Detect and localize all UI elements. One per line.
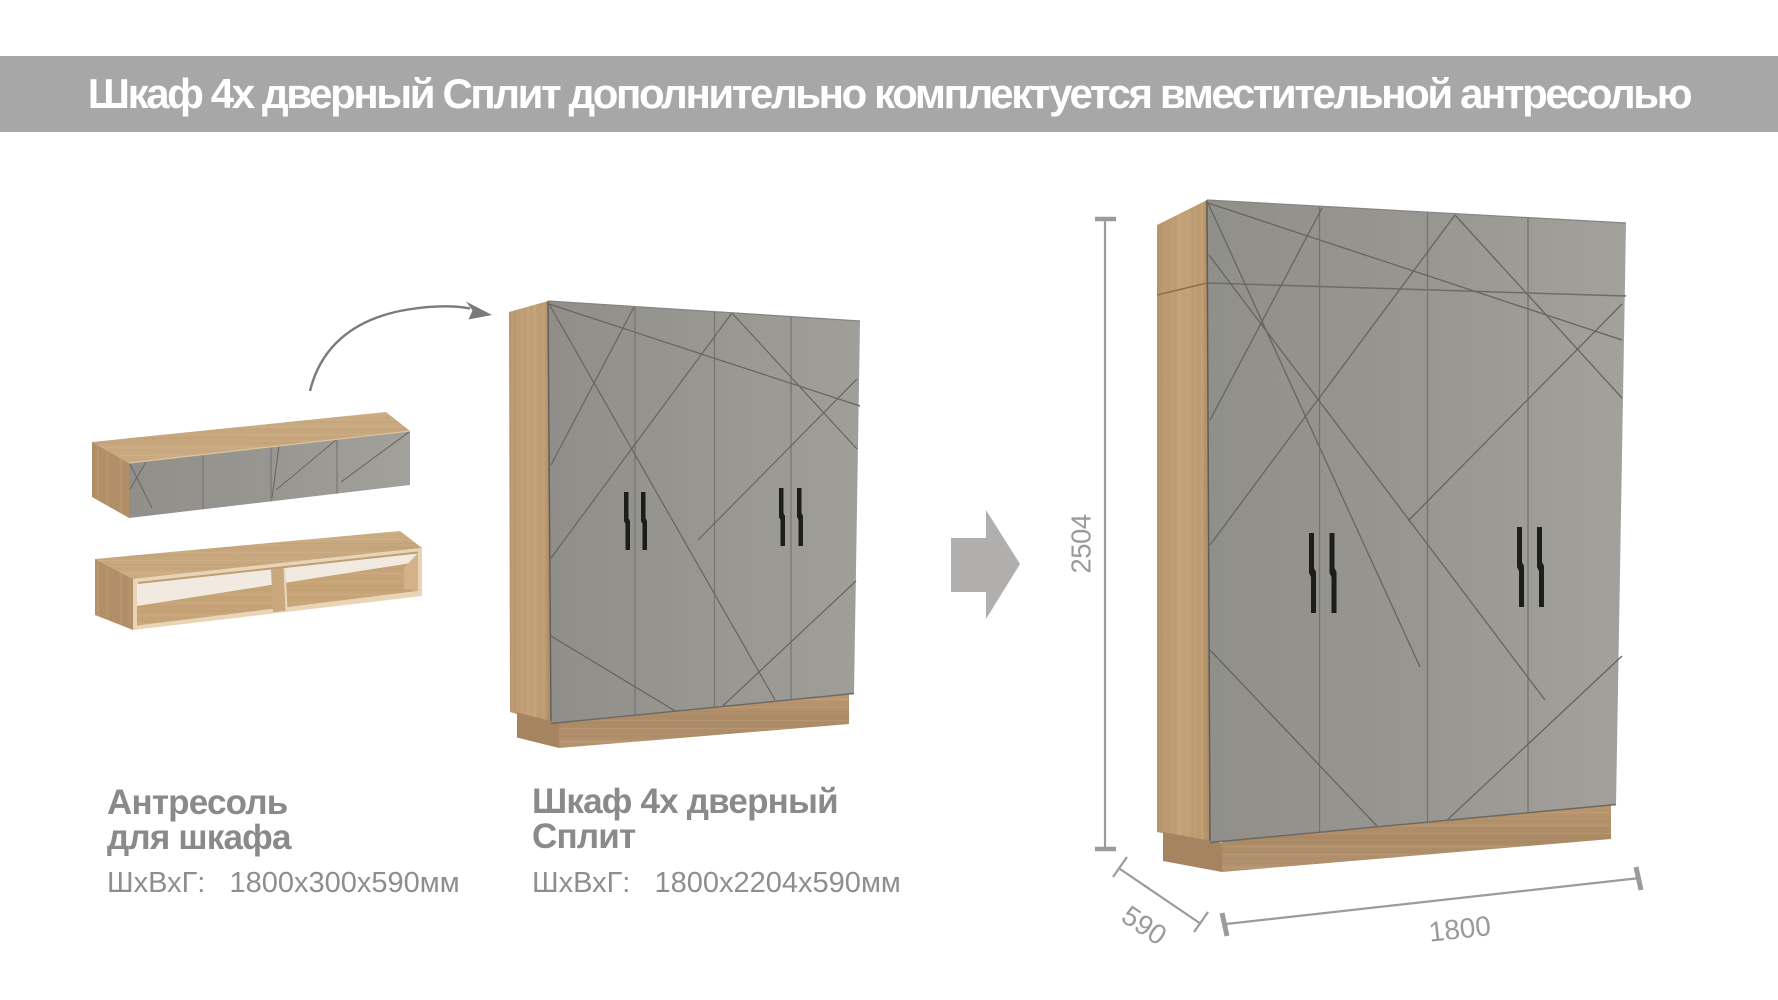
svg-text:590: 590 bbox=[1116, 899, 1172, 951]
svg-text:2504: 2504 bbox=[1065, 514, 1096, 573]
svg-text:1800: 1800 bbox=[1427, 910, 1492, 948]
